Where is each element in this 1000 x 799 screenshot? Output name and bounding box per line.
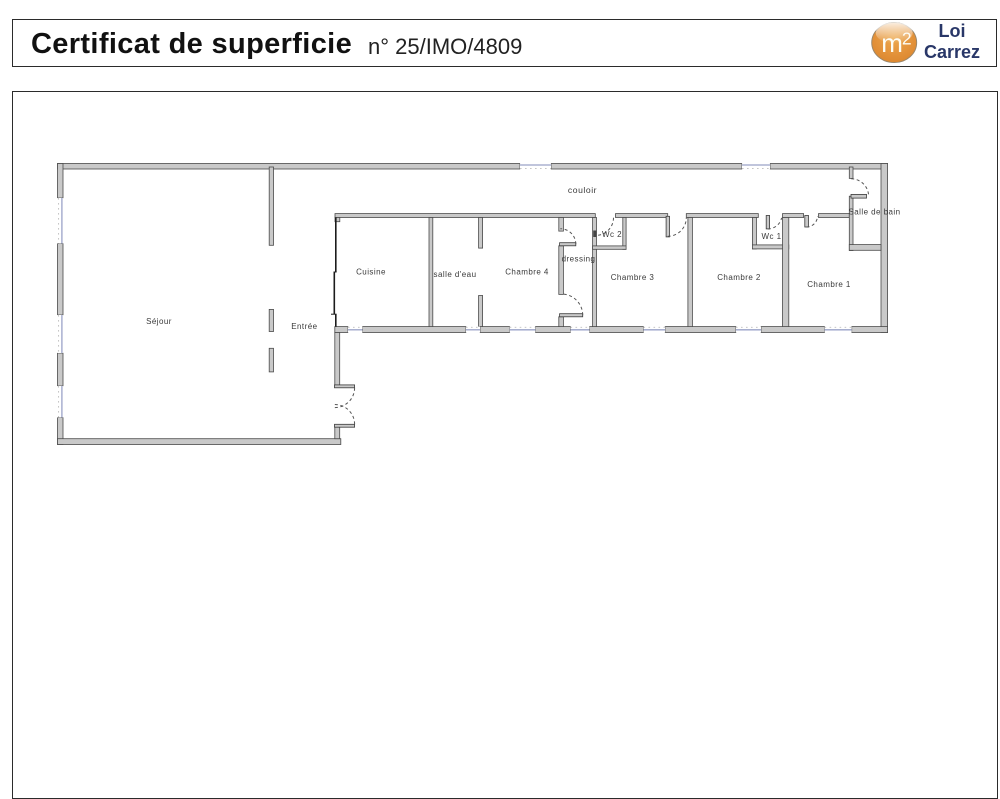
svg-text:Salle de bain: Salle de bain: [848, 208, 900, 217]
svg-text:Chambre 2: Chambre 2: [717, 273, 761, 282]
svg-text:Entrée: Entrée: [291, 322, 317, 331]
svg-text:couloir: couloir: [568, 185, 597, 195]
svg-text:Séjour: Séjour: [146, 317, 172, 326]
svg-text:Wc 2: Wc 2: [602, 230, 622, 239]
svg-text:salle d'eau: salle d'eau: [434, 270, 477, 279]
svg-text:dressing: dressing: [562, 254, 596, 263]
svg-text:Cuisine: Cuisine: [356, 267, 386, 276]
svg-text:Chambre 3: Chambre 3: [611, 273, 655, 282]
svg-text:Chambre 1: Chambre 1: [807, 280, 851, 289]
svg-text:Wc 1: Wc 1: [761, 232, 781, 241]
svg-text:Chambre 4: Chambre 4: [505, 268, 549, 277]
